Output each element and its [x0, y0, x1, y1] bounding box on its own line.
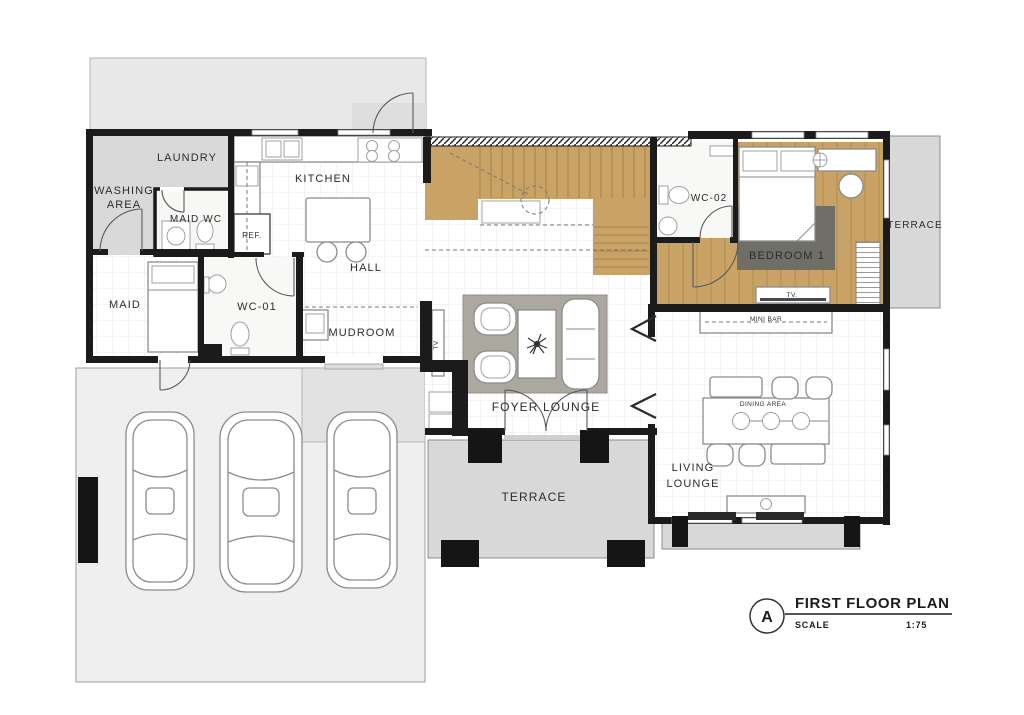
- island-stool: [317, 242, 337, 262]
- kitchen-island: [306, 198, 370, 242]
- foyer-sofa: [562, 299, 599, 389]
- label-tv-bedroom: TV.: [787, 292, 798, 299]
- living-terrace-column: [844, 516, 860, 547]
- label-terrace-bottom: TERRACE: [501, 490, 566, 504]
- wall-living-left-lower: [648, 424, 655, 524]
- maid-bed-pillow: [152, 266, 194, 283]
- label-wc01: WC-01: [237, 301, 277, 313]
- maid-garage-door-gap: [158, 356, 188, 363]
- terrace-column: [468, 430, 502, 463]
- label-washing-line1: WASHING: [94, 185, 154, 197]
- label-washing-line2: AREA: [107, 199, 141, 211]
- wall-mudroom-right: [420, 301, 432, 363]
- mudroom-garage-door-gap: [325, 356, 383, 363]
- label-maid-wc: MAID WC: [170, 214, 222, 225]
- entry-door-sill: [504, 435, 586, 440]
- place-setting: [793, 413, 810, 430]
- car-2: [220, 412, 302, 592]
- car-1: [126, 412, 194, 590]
- label-foyer-lounge: FOYER LOUNGE: [492, 400, 601, 414]
- mudroom-sink-basin: [306, 314, 324, 333]
- foyer-armchair-2-seat: [481, 356, 510, 378]
- label-mudroom: MUDROOM: [329, 327, 396, 339]
- stair-left-landing: [425, 199, 478, 220]
- label-wc02: WC-02: [691, 193, 728, 204]
- ceiling-fan-icon: [813, 153, 827, 167]
- bed-pillow: [781, 151, 815, 171]
- wall-bedroom-hall: [650, 237, 657, 312]
- wall-wc02-bedroom-divider: [733, 139, 738, 239]
- toilet-wc02: [669, 187, 689, 204]
- burner: [389, 141, 400, 152]
- toilet-tank-wc02: [659, 186, 668, 204]
- wall-right-exterior-lower: [883, 311, 890, 525]
- label-living-line1: LIVING: [672, 462, 715, 474]
- dining-chair: [739, 444, 765, 466]
- entry-shelf: [429, 392, 455, 412]
- plan-marker-letter: A: [761, 609, 773, 626]
- first-floor-plan-drawing: LAUNDRY WASHING AREA MAID WC KITCHEN REF…: [0, 0, 1024, 715]
- window-unit: [756, 512, 804, 520]
- label-maid: MAID: [109, 299, 141, 311]
- title-block: A FIRST FLOOR PLAN SCALE 1:75: [750, 595, 952, 633]
- label-dining-area: DINING AREA: [740, 401, 787, 408]
- foyer-armchair-1-seat: [481, 308, 510, 330]
- wall-stair-left-stub: [423, 137, 431, 183]
- burner: [389, 151, 400, 162]
- scale-value: 1:75: [906, 620, 927, 630]
- toilet-tank-wc01: [231, 348, 249, 355]
- label-laundry: LAUNDRY: [157, 152, 217, 164]
- maid-wc-door-gap: [160, 187, 184, 192]
- wall-living-top: [648, 304, 890, 312]
- place-setting: [763, 413, 780, 430]
- plan-title: FIRST FLOOR PLAN: [795, 595, 950, 612]
- dining-bench-bottom: [771, 444, 825, 464]
- basin-wc02: [659, 217, 677, 235]
- mudroom-step: [325, 364, 383, 369]
- dining-bench-top: [710, 377, 762, 397]
- basin-counter-wc01: [204, 277, 209, 293]
- wc02-shelf: [710, 146, 734, 156]
- terrace-column: [607, 540, 645, 567]
- floor-plan-page: LAUNDRY WASHING AREA MAID WC KITCHEN REF…: [0, 0, 1024, 715]
- stair-lower-flight: [593, 199, 650, 275]
- label-tv-foyer: TV: [433, 340, 440, 349]
- stair-upper-flight: [425, 145, 650, 199]
- label-kitchen: KITCHEN: [295, 173, 351, 185]
- living-terrace-strip: [662, 521, 860, 549]
- burner: [367, 141, 378, 152]
- bedroom-window-top: [752, 132, 804, 138]
- living-terrace-column: [672, 516, 688, 547]
- bedroom-window-right: [884, 160, 889, 218]
- label-mini-bar: MINI BAR: [750, 316, 782, 323]
- living-window-right: [884, 349, 889, 390]
- label-bedroom1: BEDROOM 1: [749, 250, 825, 262]
- wall-left-exterior: [86, 129, 93, 363]
- living-window-right: [884, 425, 889, 455]
- window-seat: [856, 242, 880, 306]
- bed-pillow: [743, 151, 777, 171]
- kitchen-window: [252, 130, 298, 135]
- wall-stair-wc02-divider: [650, 137, 657, 237]
- terrace-column: [441, 540, 479, 567]
- sink-basin-left: [266, 141, 281, 157]
- toilet-wc01: [231, 322, 249, 346]
- wall-maid-wc01-divider: [198, 252, 204, 363]
- car-3: [327, 412, 397, 588]
- washing-machine-drum: [167, 227, 185, 245]
- bedroom-stool: [839, 174, 863, 198]
- place-setting: [733, 413, 750, 430]
- wall-wc01-mudroom-divider: [296, 252, 303, 363]
- island-stool: [346, 242, 366, 262]
- wall-living-left-upper: [648, 311, 655, 337]
- burner: [367, 151, 378, 162]
- sink-basin-right: [284, 141, 299, 157]
- terrace-column: [580, 430, 609, 463]
- wall-entry-connector: [420, 360, 468, 372]
- label-living-line2: LOUNGE: [666, 478, 719, 490]
- dining-chair: [806, 377, 832, 399]
- bedroom-window-top: [816, 132, 868, 138]
- washbasin-wc01: [208, 275, 226, 293]
- label-hall: HALL: [350, 262, 382, 274]
- stair-railing: [482, 201, 540, 223]
- garage-gate-post: [78, 477, 98, 563]
- window-unit: [688, 512, 736, 520]
- label-terrace-right: TERRACE: [887, 220, 942, 231]
- kitchen-window: [338, 130, 390, 135]
- scale-label: SCALE: [795, 620, 830, 630]
- tv-console-knob: [761, 499, 772, 510]
- cars: [126, 412, 397, 592]
- label-ref: REF.: [242, 231, 262, 240]
- dining-chair: [772, 377, 798, 399]
